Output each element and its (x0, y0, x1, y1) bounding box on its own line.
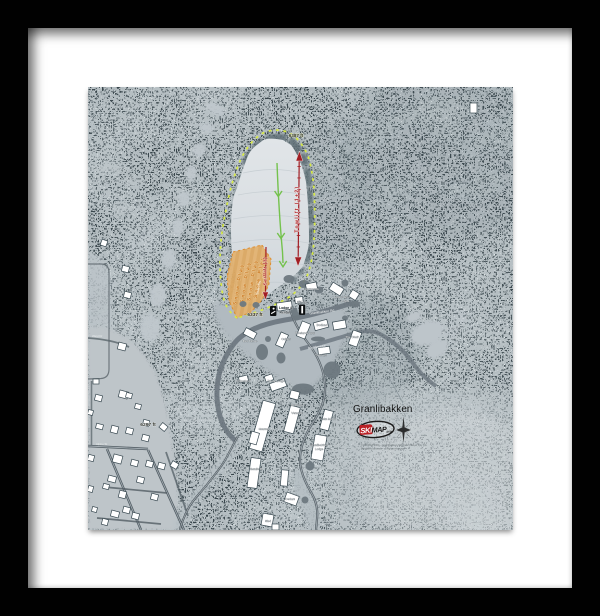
svg-text:6387 ft: 6387 ft (289, 133, 304, 138)
svg-text:Cabins: Cabins (281, 337, 291, 341)
svg-text:Cedars: Cedars (285, 497, 295, 501)
svg-text:Grantell: Grantell (259, 427, 270, 431)
svg-text:Bodland: Bodland (316, 323, 327, 327)
svg-text:Ski Rte: Ski Rte (297, 301, 308, 305)
svg-text:Campgrds: Campgrds (305, 287, 319, 291)
svg-text:6297 ft: 6297 ft (140, 422, 156, 428)
svg-text:Bearpaw: Bearpaw (291, 403, 304, 407)
svg-text:Ward Dr: Ward Dr (92, 334, 102, 338)
svg-text:.org: .org (386, 429, 392, 433)
svg-text:Mtn Moon: Mtn Moon (322, 417, 336, 421)
svg-text:Seillift (3): Seillift (3) (263, 257, 269, 286)
svg-text:© SKIMAP.ORG • Granlibakken Sk: © SKIMAP.ORG • Granlibakken Ski Area • T… (361, 443, 427, 447)
svg-text:Alpine St: Alpine St (96, 442, 107, 446)
svg-text:Lodge: Lodge (315, 447, 324, 451)
svg-text:Granlibakken: Granlibakken (353, 404, 413, 415)
svg-text:Twin Peaks: Twin Peaks (453, 180, 468, 184)
svg-text:Rendered artwork • all rights: Rendered artwork • all rights reserved (361, 447, 405, 451)
svg-text:Towlift (1+2): Towlift (1+2) (295, 185, 301, 232)
svg-text:Veranda: Veranda (291, 411, 303, 415)
svg-text:Rental: Rental (280, 311, 290, 315)
svg-text:Red Tahoe: Red Tahoe (243, 339, 258, 343)
svg-text:Sled: Sled (265, 519, 271, 523)
svg-text:Natalie B: Natalie B (250, 467, 262, 471)
svg-text:Lodge &: Lodge & (279, 306, 293, 310)
svg-text:6337 ft: 6337 ft (247, 312, 263, 318)
svg-text:Timberland: Timberland (236, 379, 251, 383)
svg-text:Treetops: Treetops (315, 353, 327, 357)
svg-text:The Chair: The Chair (345, 335, 358, 339)
svg-text:Pinelands Apts: Pinelands Apts (295, 331, 315, 335)
svg-text:+ Spa: + Spa (341, 299, 349, 303)
svg-text:Tahoe Lodge: Tahoe Lodge (267, 379, 285, 383)
